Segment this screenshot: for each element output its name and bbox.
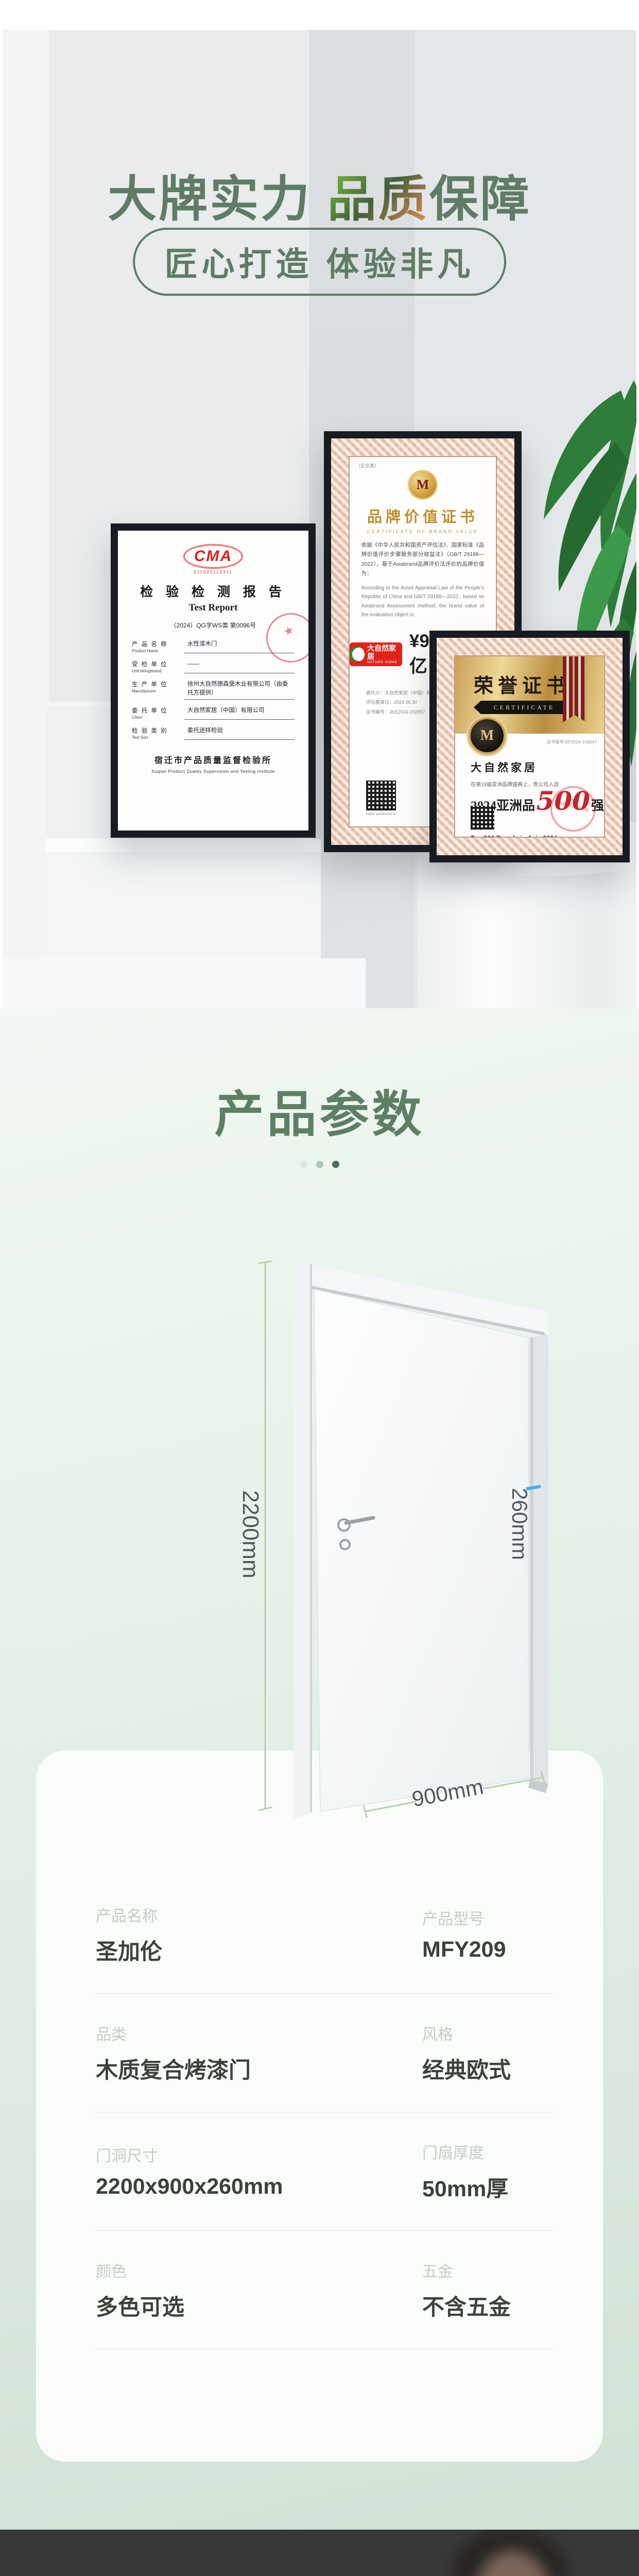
field-label: 生 产 单 位 <box>132 680 184 688</box>
qr-code <box>471 806 494 829</box>
field-value: —— <box>184 660 295 673</box>
pedestal-cylinder <box>417 842 636 1008</box>
field-row: 检 验 类 别 Test Sort 委托送样检验 <box>132 726 295 740</box>
param-label: 门洞尺寸 <box>96 2143 422 2166</box>
depth-dimension-label: 260mm <box>508 1488 532 1560</box>
honor-certificate: 荣誉证书 CERTIFICATE M 证书编号:BP2024-100047 大自… <box>429 631 630 862</box>
param-label: 产品型号 <box>422 1906 554 1929</box>
param-value: 木质复合烤漆门 <box>96 2053 422 2084</box>
nature-home-logo: 大自然家居 NATURE HOME <box>350 642 402 666</box>
cma-logo: CMA 211020112311 <box>182 544 244 574</box>
table-row: 门洞尺寸 2200x900x260mm 门扇厚度 50mm厚 <box>96 2112 554 2231</box>
service-section: 金保姆服务 全国1000+实体门店支持 咨询下单 › 上 <box>0 2530 639 2576</box>
award-title-en: Top 500 Brands in Asia 2024 <box>471 835 604 838</box>
certificate-paragraph-cn: 依据《中华人民共和国资产评估法》、国家标准《品牌价值评价步骤服务部分收益法》（G… <box>361 540 485 579</box>
section-title: 产品参数 <box>0 1074 639 1146</box>
parameters-card: 产品名称 圣加伦 产品型号 MFY209 品类 木质复合烤漆门 风格 <box>36 1751 603 2462</box>
param-label: 产品名称 <box>96 1903 422 1926</box>
table-row: 品类 木质复合烤漆门 风格 经典欧式 <box>96 1994 554 2112</box>
table-row: 颜色 多色可选 五金 不含五金 <box>96 2231 554 2349</box>
param-label: 风格 <box>422 2022 554 2044</box>
field-row: 生 产 单 位 Manufacturer 徐州大自然德森堡木业有限公司（由委托方… <box>132 680 295 700</box>
hero-title-part3: 保障 <box>429 172 531 227</box>
test-report-certificate: CMA 211020112311 检 验 检 测 报 告 Test Report… <box>111 523 316 838</box>
field-label: 受 检 单 位 <box>132 660 184 668</box>
hero-title: 大牌实力 品质保障 <box>3 160 636 230</box>
brand-name: 大自然家居 <box>471 759 604 775</box>
customer-service-photo <box>309 2530 639 2576</box>
param-value: 不含五金 <box>422 2290 554 2321</box>
logo-text-cn: 大自然家居 <box>367 645 402 660</box>
param-label: 五金 <box>422 2259 554 2281</box>
certificate-paper: CMA 211020112311 检 验 检 测 报 告 Test Report… <box>118 531 308 831</box>
report-fields: 产 品 名 称 Product Name 水性漆木门 受 检 单 位 Unit … <box>132 640 295 740</box>
field-label-en: Unit beingtested <box>132 669 184 673</box>
field-label-en: Client <box>132 715 184 720</box>
issuer-en: Suqian Product Quality Supervision and T… <box>118 769 308 774</box>
table-row: 产品名称 圣加伦 产品型号 MFY209 <box>96 1875 554 1994</box>
certificate-paragraph-en: According to the Asset Appraisal Law of … <box>361 584 485 620</box>
param-value: 圣加伦 <box>96 1934 422 1966</box>
height-dimension-label: 2200mm <box>238 1490 263 1578</box>
field-value: 徐州大自然德森堡木业有限公司（由委托方提供） <box>184 680 295 700</box>
param-value: 多色可选 <box>96 2290 422 2321</box>
field-label-en: Product Name <box>132 649 184 653</box>
dot-icon <box>332 1161 339 1168</box>
field-row: 受 检 单 位 Unit beingtested —— <box>132 660 295 673</box>
param-value: MFY209 <box>422 1937 554 1962</box>
door-panel <box>314 1289 528 1811</box>
certificate-ribbon-label: CERTIFICATE <box>474 701 575 714</box>
pedestal-platform <box>3 958 366 1008</box>
param-label: 颜色 <box>96 2259 422 2281</box>
field-row: 委 托 单 位 Client 大自然家居（中国）有限公司 <box>132 706 295 720</box>
hero-section: 大牌实力 品质保障 匠心打造 体验非凡 （企业类） M 品牌价值证书 CERTI… <box>3 30 636 1008</box>
hero-subtitle-pill: 匠心打造 体验非凡 <box>133 228 507 296</box>
field-value: 大自然家居（中国）有限公司 <box>184 706 295 720</box>
param-label: 品类 <box>96 2022 422 2044</box>
param-label: 门扇厚度 <box>422 2140 554 2163</box>
field-label: 产 品 名 称 <box>132 640 184 648</box>
black-gold-medal-icon: M <box>469 717 506 754</box>
field-label-en: Manufacturer <box>132 689 184 693</box>
ornate-border: 荣誉证书 CERTIFICATE M 证书编号:BP2024-100047 大自… <box>437 638 623 855</box>
cma-number: 211020112311 <box>182 570 244 574</box>
product-detail-page: 大牌实力 品质保障 匠心打造 体验非凡 （企业类） M 品牌价值证书 CERTI… <box>0 0 639 2576</box>
parameters-table: 产品名称 圣加伦 产品型号 MFY209 品类 木质复合烤漆门 风格 <box>96 1875 554 2349</box>
nature-home-logo-icon <box>350 647 365 662</box>
gold-medal-icon: M <box>408 470 438 500</box>
honor-title: 荣誉证书 <box>474 670 571 698</box>
field-value: 委托送样检验 <box>184 726 295 740</box>
hero-title-part2-gradient: 品质 <box>327 172 429 227</box>
door-frame-left <box>293 1262 312 1819</box>
dot-icon <box>300 1161 307 1168</box>
field-label-en: Test Sort <box>132 735 184 740</box>
field-label: 检 验 类 别 <box>132 726 184 735</box>
hero-title-part1: 大牌实力 <box>108 172 327 227</box>
door-dimension-diagram: 2200mm 260mm 900mm <box>211 1256 561 1823</box>
param-value: 经典欧式 <box>422 2053 554 2084</box>
category-label: （企业类） <box>356 462 496 469</box>
product-parameters-section: 产品参数 产品名称 圣加伦 产品型号 MFY209 <box>0 1008 639 2530</box>
issuer: 宿迁市产品质量监督检验所 <box>118 753 308 766</box>
logo-text-en: NATURE HOME <box>367 660 402 664</box>
report-title: 检 验 检 测 报 告 <box>118 582 308 600</box>
title-dots-decoration <box>0 1161 639 1168</box>
dot-icon <box>316 1161 323 1168</box>
certificate-title-en: CERTIFICATE OF BRAND VALUE <box>350 529 496 534</box>
param-value: 50mm厚 <box>422 2171 554 2203</box>
certificate-paper: 荣誉证书 CERTIFICATE M 证书编号:BP2024-100047 大自… <box>454 655 605 838</box>
param-value: 2200x900x260mm <box>96 2174 422 2199</box>
stamp-star: ★ <box>266 621 308 640</box>
cma-logo-text: CMA <box>183 544 243 569</box>
field-label: 委 托 单 位 <box>132 706 184 715</box>
qr-code <box>366 781 396 810</box>
certificate-title: 品牌价值证书 <box>350 505 496 527</box>
report-title-en: Test Report <box>118 602 308 614</box>
ribbon-stripes-icon <box>563 656 586 722</box>
qr-caption: baike.asiabrand.cn <box>366 812 396 816</box>
